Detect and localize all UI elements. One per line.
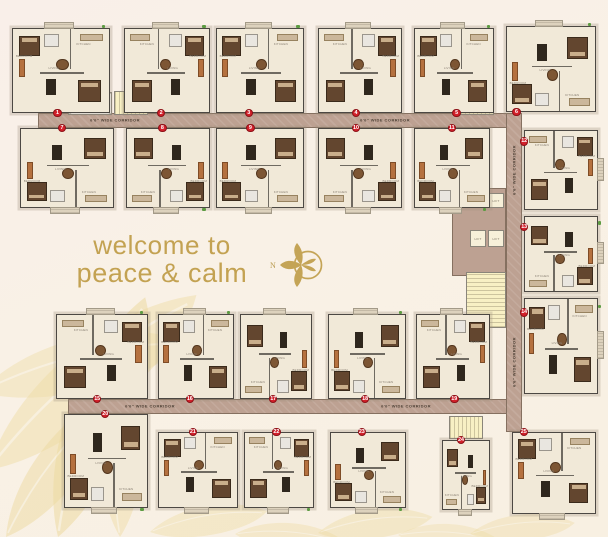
room-label: KITCHEN bbox=[535, 275, 549, 278]
unit-interior: BEDROOMLIVINGKITCHEN bbox=[525, 217, 597, 291]
balcony bbox=[597, 242, 604, 264]
bed-icon bbox=[186, 36, 204, 56]
room-label: BEDROOM bbox=[417, 55, 434, 58]
unit-number-badge: 16 bbox=[186, 395, 194, 403]
room-label: LIVING bbox=[552, 342, 563, 345]
interior-wall-icon bbox=[532, 66, 572, 68]
bed-icon bbox=[186, 182, 204, 201]
room-label: LIVING bbox=[49, 67, 60, 70]
room-label: LIVING bbox=[452, 353, 463, 356]
kitchen-counter-icon bbox=[62, 320, 84, 327]
bathroom-icon bbox=[362, 34, 375, 47]
tv-unit-icon bbox=[457, 365, 465, 382]
apartment-unit: BEDROOMLIVINGKITCHEN19 bbox=[416, 314, 490, 399]
bed-icon bbox=[531, 226, 548, 245]
apartment-unit: BEDROOMLIVINGKITCHEN7 bbox=[20, 128, 114, 208]
plant-icon bbox=[598, 305, 601, 308]
bed-icon bbox=[574, 357, 591, 381]
kitchen-counter-icon bbox=[529, 136, 546, 143]
balcony bbox=[345, 207, 371, 214]
room-label: LIVING bbox=[442, 168, 453, 171]
corridor-width-label: 6'6" WIDE CORRIDOR bbox=[512, 145, 517, 195]
wardrobe-icon bbox=[529, 333, 534, 354]
unit-interior: BEDROOMLIVINGKITCHEN bbox=[65, 415, 147, 507]
bathroom-icon bbox=[355, 491, 367, 503]
north-compass-icon: N bbox=[268, 240, 332, 292]
wardrobe-icon bbox=[512, 62, 518, 80]
kitchen-counter-icon bbox=[130, 34, 150, 41]
interior-wall-icon bbox=[205, 433, 206, 469]
bathroom-icon bbox=[183, 320, 195, 333]
room-label: BEDROOM bbox=[24, 180, 41, 183]
plant-icon bbox=[140, 311, 143, 314]
bed-icon bbox=[70, 478, 88, 500]
apartment-unit: BEDROOMLIVINGKITCHEN21 bbox=[158, 432, 238, 508]
wardrobe-icon bbox=[588, 159, 593, 176]
apartment-unit: BEDROOMLIVINGKITCHEN10 bbox=[318, 128, 402, 208]
kitchen-counter-icon bbox=[421, 320, 438, 327]
balcony bbox=[183, 308, 207, 315]
unit-number-badge: 5 bbox=[452, 109, 460, 117]
balcony bbox=[91, 507, 117, 514]
bed-icon bbox=[335, 483, 351, 501]
wardrobe-icon bbox=[19, 59, 26, 77]
room-label: LIVING bbox=[358, 470, 369, 473]
bed-icon bbox=[577, 267, 593, 285]
unit-interior: BEDROOMLIVINGKITCHEN bbox=[443, 441, 489, 509]
bathroom-icon bbox=[362, 190, 375, 202]
interior-wall-icon bbox=[113, 463, 114, 507]
balcony bbox=[152, 22, 179, 29]
unit-interior: BEDROOMLIVINGKITCHEN bbox=[415, 129, 489, 207]
interior-wall-icon bbox=[350, 353, 385, 354]
kitchen-counter-icon bbox=[382, 386, 400, 393]
balcony bbox=[355, 507, 379, 514]
kitchen-counter-icon bbox=[324, 34, 344, 41]
balcony bbox=[263, 308, 285, 315]
interior-wall-icon bbox=[559, 71, 560, 111]
interior-wall-icon bbox=[545, 348, 578, 350]
plant-icon bbox=[588, 23, 591, 26]
lift: LIFT bbox=[470, 230, 486, 247]
tagline-line1: welcome to bbox=[56, 232, 268, 259]
bathroom-icon bbox=[169, 34, 182, 47]
unit-interior: BEDROOMLIVINGKITCHEN bbox=[417, 315, 489, 398]
kitchen-counter-icon bbox=[277, 195, 298, 202]
room-label: KITCHEN bbox=[379, 381, 393, 384]
room-label: KITCHEN bbox=[535, 144, 549, 147]
bed-icon bbox=[378, 182, 396, 201]
bathroom-icon bbox=[535, 93, 549, 106]
bathroom-icon bbox=[454, 320, 466, 333]
plant-icon bbox=[399, 311, 402, 314]
interior-wall-icon bbox=[567, 299, 568, 344]
unit-interior: BEDROOMLIVINGKITCHEN bbox=[525, 131, 597, 209]
wardrobe-icon bbox=[483, 470, 486, 485]
room-label: KITCHEN bbox=[210, 446, 224, 449]
kitchen-counter-icon bbox=[570, 438, 590, 445]
unit-number-badge: 1 bbox=[53, 109, 61, 117]
room-label: BEDROOM bbox=[161, 456, 178, 459]
wardrobe-icon bbox=[304, 460, 309, 476]
interior-wall-icon bbox=[92, 315, 93, 355]
bed-icon bbox=[291, 371, 306, 391]
room-label: KITCHEN bbox=[466, 43, 480, 46]
bathroom-icon bbox=[245, 190, 259, 202]
interior-wall-icon bbox=[88, 458, 126, 460]
interior-wall-icon bbox=[536, 475, 574, 476]
room-label: LIVING bbox=[277, 467, 288, 470]
tv-unit-icon bbox=[184, 365, 192, 382]
room-label: LIVING bbox=[95, 462, 106, 465]
apartment-unit: BEDROOMLIVINGKITCHEN3 bbox=[216, 28, 304, 113]
tv-unit-icon bbox=[280, 332, 288, 349]
unit-interior: BEDROOMLIVINGKITCHEN bbox=[329, 315, 405, 398]
balcony bbox=[539, 513, 565, 520]
unit-interior: BEDROOMLIVINGKITCHEN bbox=[217, 29, 303, 112]
bed-icon bbox=[209, 366, 227, 388]
bathroom-icon bbox=[50, 190, 65, 202]
unit-number-badge: 22 bbox=[272, 428, 280, 436]
interior-wall-icon bbox=[241, 72, 281, 73]
interior-wall-icon bbox=[553, 131, 554, 168]
interior-wall-icon bbox=[445, 315, 446, 355]
plant-icon bbox=[598, 221, 601, 224]
bed-icon bbox=[121, 426, 141, 450]
room-label: KITCHEN bbox=[274, 191, 288, 194]
apartment-unit: BEDROOMLIVINGKITCHEN5 bbox=[414, 28, 494, 113]
interior-wall-icon bbox=[375, 471, 376, 507]
wardrobe-icon bbox=[302, 350, 307, 368]
bed-icon bbox=[529, 307, 545, 330]
balcony bbox=[439, 207, 463, 214]
plant-icon bbox=[140, 508, 143, 511]
room-label: LIVING bbox=[560, 167, 571, 170]
tv-unit-icon bbox=[364, 79, 373, 96]
corridor-width-label: 6'6" WIDE CORRIDOR bbox=[90, 118, 140, 123]
plant-icon bbox=[399, 508, 402, 511]
kitchen-counter-icon bbox=[277, 34, 298, 41]
plant-icon bbox=[483, 208, 486, 211]
room-label: LIVING bbox=[540, 69, 551, 72]
bathroom-icon bbox=[439, 190, 451, 202]
room-label: LIVING bbox=[357, 357, 368, 360]
corridor-width-label: 6'6" WIDE CORRIDOR bbox=[360, 118, 410, 123]
room-label: LIVING bbox=[103, 353, 114, 356]
apartment-unit: BEDROOMLIVINGKITCHEN4 bbox=[318, 28, 402, 113]
interior-wall-icon bbox=[340, 72, 378, 73]
room-label: LIVING bbox=[543, 470, 554, 473]
balcony bbox=[50, 207, 79, 214]
bed-icon bbox=[275, 80, 296, 102]
balcony bbox=[345, 22, 371, 29]
interior-wall-icon bbox=[437, 72, 473, 73]
interior-wall-icon bbox=[374, 358, 375, 398]
tv-unit-icon bbox=[440, 145, 448, 161]
kitchen-counter-icon bbox=[569, 98, 590, 106]
tv-unit-icon bbox=[52, 145, 62, 161]
room-label: LIVING bbox=[461, 475, 472, 478]
bed-icon bbox=[469, 322, 485, 342]
unit-interior: BEDROOMLIVINGKITCHEN bbox=[217, 129, 303, 207]
room-label: KITCHEN bbox=[567, 447, 581, 450]
unit-number-badge: 3 bbox=[245, 109, 253, 117]
room-label: BEDROOM bbox=[382, 180, 399, 183]
bathroom-icon bbox=[277, 380, 288, 393]
interior-wall-icon bbox=[561, 433, 562, 471]
unit-number-badge: 6 bbox=[512, 108, 520, 116]
balcony bbox=[245, 22, 273, 29]
apartment-unit: BEDROOMLIVINGKITCHEN22 bbox=[244, 432, 314, 508]
apartment-unit: BEDROOMLIVINGKITCHEN15 bbox=[56, 314, 148, 399]
bed-icon bbox=[447, 449, 458, 467]
tv-unit-icon bbox=[549, 355, 557, 374]
apartment-unit: BEDROOMLIVINGKITCHEN2 bbox=[124, 28, 210, 113]
bed-icon bbox=[132, 80, 152, 102]
bed-icon bbox=[222, 182, 241, 201]
room-label: LIVING bbox=[55, 168, 66, 171]
room-label: BEDROOM bbox=[510, 82, 527, 85]
bed-icon bbox=[122, 322, 142, 342]
room-label: BEDROOM bbox=[294, 456, 311, 459]
interior-wall-icon bbox=[159, 170, 160, 207]
apartment-unit: BEDROOMLIVINGKITCHEN24 bbox=[442, 440, 490, 510]
bed-icon bbox=[381, 325, 399, 347]
bathroom-icon bbox=[562, 136, 574, 148]
tv-unit-icon bbox=[282, 477, 289, 492]
bed-icon bbox=[247, 325, 264, 347]
unit-number-badge: 19 bbox=[450, 395, 458, 403]
tv-unit-icon bbox=[246, 145, 255, 161]
interior-wall-icon bbox=[544, 172, 577, 173]
apartment-unit: BEDROOMLIVINGKITCHEN25 bbox=[512, 432, 596, 514]
bed-icon bbox=[275, 138, 296, 158]
balcony bbox=[153, 207, 179, 214]
bed-icon bbox=[326, 80, 346, 102]
interior-wall-icon bbox=[351, 170, 352, 207]
room-label: KITCHEN bbox=[274, 43, 288, 46]
kitchen-counter-icon bbox=[249, 437, 265, 444]
interior-wall-icon bbox=[147, 72, 186, 73]
unit-interior: BEDROOMLIVINGKITCHEN bbox=[125, 29, 209, 112]
unit-interior: BEDROOMLIVINGKITCHEN bbox=[245, 433, 313, 507]
bed-icon bbox=[212, 479, 231, 498]
unit-interior: BEDROOMLIVINGKITCHEN bbox=[319, 129, 401, 207]
plant-icon bbox=[202, 25, 205, 28]
bed-icon bbox=[531, 179, 548, 199]
tv-unit-icon bbox=[172, 145, 181, 161]
room-label: BEDROOM bbox=[515, 458, 532, 461]
room-label: BEDROOM bbox=[333, 481, 350, 484]
interior-wall-icon bbox=[268, 29, 269, 69]
interior-wall-icon bbox=[436, 358, 469, 359]
balcony bbox=[353, 308, 377, 315]
apartment-unit: BEDROOMLIVINGKITCHEN9 bbox=[216, 128, 304, 208]
kitchen-counter-icon bbox=[132, 195, 152, 202]
corridor-width-label: 6'6" WIDE CORRIDOR bbox=[381, 404, 431, 409]
room-label: BEDROOM bbox=[128, 341, 145, 344]
bathroom-icon bbox=[184, 437, 196, 449]
bed-icon bbox=[567, 37, 588, 59]
room-label: BEDROOM bbox=[220, 180, 237, 183]
room-label: LIVING bbox=[167, 67, 178, 70]
unit-number-badge: 12 bbox=[520, 137, 528, 145]
tv-unit-icon bbox=[565, 232, 573, 247]
room-label: LIVING bbox=[186, 353, 197, 356]
bed-icon bbox=[250, 479, 266, 498]
kitchen-counter-icon bbox=[383, 496, 401, 503]
lift: LIFT bbox=[488, 193, 504, 208]
room-label: LIVING bbox=[249, 168, 260, 171]
kitchen-counter-icon bbox=[575, 305, 592, 313]
interior-wall-icon bbox=[263, 471, 294, 472]
interior-wall-icon bbox=[47, 165, 89, 166]
kitchen-counter-icon bbox=[245, 386, 262, 393]
unit-interior: BEDROOMLIVINGKITCHEN bbox=[127, 129, 209, 207]
interior-wall-icon bbox=[70, 29, 72, 69]
room-label: BEDROOM bbox=[527, 328, 544, 331]
wardrobe-icon bbox=[390, 59, 396, 77]
bed-icon bbox=[569, 483, 589, 504]
room-label: KITCHEN bbox=[141, 191, 155, 194]
interior-wall-icon bbox=[259, 353, 291, 354]
balcony bbox=[458, 509, 473, 516]
interior-wall-icon bbox=[180, 358, 214, 359]
room-label: LIVING bbox=[168, 168, 179, 171]
tagline: welcome to peace & calm bbox=[56, 232, 268, 287]
bed-icon bbox=[423, 366, 440, 388]
unit-interior: BEDROOMLIVINGKITCHEN bbox=[319, 29, 401, 112]
kitchen-counter-icon bbox=[529, 280, 546, 287]
interior-wall-icon bbox=[203, 315, 204, 355]
wardrobe-icon bbox=[163, 345, 168, 363]
room-label: LIVING bbox=[360, 168, 371, 171]
interior-wall-icon bbox=[40, 72, 84, 73]
tv-unit-icon bbox=[541, 481, 550, 497]
unit-interior: BEDROOMLIVINGKITCHEN bbox=[513, 433, 595, 513]
room-label: BEDROOM bbox=[382, 55, 399, 58]
unit-interior: BEDROOMLIVINGKITCHEN bbox=[331, 433, 405, 507]
unit-interior: BEDROOMLIVINGKITCHEN bbox=[159, 433, 237, 507]
bed-icon bbox=[577, 137, 593, 156]
corridor-width-label: 6'6" WIDE CORRIDOR bbox=[125, 404, 175, 409]
bed-icon bbox=[465, 138, 483, 158]
tv-unit-icon bbox=[355, 332, 363, 349]
interior-wall-icon bbox=[553, 255, 554, 291]
plant-icon bbox=[296, 25, 299, 28]
room-label: BEDROOM bbox=[16, 55, 33, 58]
apartment-unit: BEDROOMLIVINGKITCHEN16 bbox=[158, 314, 234, 399]
room-label: BEDROOM bbox=[470, 341, 487, 344]
kitchen-counter-icon bbox=[470, 34, 489, 41]
bathroom-icon bbox=[104, 320, 118, 333]
bed-icon bbox=[78, 80, 101, 102]
bed-icon bbox=[378, 36, 396, 56]
interior-wall-icon bbox=[148, 165, 186, 166]
apartment-unit: BEDROOMLIVINGKITCHEN12 bbox=[524, 130, 598, 210]
bathroom-icon bbox=[539, 438, 552, 451]
room-label: BEDROOM bbox=[292, 369, 309, 372]
tv-unit-icon bbox=[107, 365, 117, 382]
room-label: KITCHEN bbox=[427, 329, 441, 332]
wardrobe-icon bbox=[164, 460, 169, 476]
wardrobe-icon bbox=[222, 59, 228, 77]
bathroom-icon bbox=[91, 487, 104, 502]
plant-icon bbox=[102, 25, 105, 28]
balcony bbox=[245, 207, 273, 214]
north-label: N bbox=[270, 261, 276, 270]
wardrobe-icon bbox=[419, 162, 424, 179]
staircase bbox=[449, 416, 483, 439]
apartment-unit: BEDROOMLIVINGKITCHEN23 bbox=[330, 432, 406, 508]
kitchen-counter-icon bbox=[80, 34, 103, 41]
unit-number-badge: 8 bbox=[158, 124, 166, 132]
unit-interior: BEDROOMLIVINGKITCHEN bbox=[507, 27, 595, 111]
room-label: KITCHEN bbox=[139, 43, 153, 46]
bathroom-icon bbox=[353, 380, 365, 393]
balcony bbox=[535, 20, 563, 27]
wardrobe-icon bbox=[420, 59, 425, 77]
unit-interior: BEDROOMLIVINGKITCHEN bbox=[525, 299, 597, 393]
room-label: BEDROOM bbox=[190, 180, 207, 183]
interior-wall-icon bbox=[461, 476, 462, 509]
bed-icon bbox=[164, 439, 181, 457]
apartment-unit: BEDROOMLIVINGKITCHEN18 bbox=[328, 314, 406, 399]
kitchen-counter-icon bbox=[467, 195, 485, 202]
bathroom-icon bbox=[44, 34, 59, 47]
bed-icon bbox=[381, 442, 399, 461]
bed-icon bbox=[222, 36, 241, 56]
balcony bbox=[597, 158, 604, 181]
bed-icon bbox=[468, 80, 487, 102]
bed-icon bbox=[334, 371, 351, 391]
unit-interior: BEDROOMLIVINGKITCHEN bbox=[57, 315, 147, 398]
apartment-unit: BEDROOMLIVINGKITCHEN14 bbox=[524, 298, 598, 394]
wardrobe-icon bbox=[135, 345, 141, 363]
room-label: KITCHEN bbox=[208, 329, 222, 332]
interior-wall-icon bbox=[241, 165, 281, 166]
plant-icon bbox=[202, 208, 205, 211]
bed-icon bbox=[419, 182, 435, 201]
tv-unit-icon bbox=[46, 79, 57, 96]
unit-interior: BEDROOMLIVINGKITCHEN bbox=[415, 29, 493, 112]
interior-wall-icon bbox=[181, 471, 217, 472]
bathroom-icon bbox=[440, 34, 452, 47]
apartment-unit: BEDROOMLIVINGKITCHEN17 bbox=[240, 314, 312, 399]
bed-icon bbox=[19, 36, 40, 56]
room-label: BEDROOM bbox=[161, 341, 178, 344]
interior-wall-icon bbox=[80, 358, 121, 359]
apartment-unit: BEDROOMLIVINGKITCHEN6 bbox=[506, 26, 596, 112]
room-label: KITCHEN bbox=[333, 43, 347, 46]
interior-wall-icon bbox=[340, 165, 378, 166]
room-label: KITCHEN bbox=[82, 191, 96, 194]
tv-unit-icon bbox=[364, 145, 373, 161]
balcony bbox=[440, 308, 463, 315]
wardrobe-icon bbox=[198, 162, 204, 179]
room-label: KITCHEN bbox=[76, 43, 90, 46]
room-label: BEDROOM bbox=[331, 369, 348, 372]
bathroom-icon bbox=[562, 275, 574, 287]
apartment-unit: BEDROOMLIVINGKITCHEN8 bbox=[126, 128, 210, 208]
room-label: BEDROOM bbox=[220, 55, 237, 58]
plant-icon bbox=[307, 508, 310, 511]
room-label: LIVING bbox=[444, 67, 455, 70]
kitchen-counter-icon bbox=[324, 195, 344, 202]
unit-interior: BEDROOMLIVINGKITCHEN bbox=[241, 315, 311, 398]
bed-icon bbox=[134, 138, 154, 158]
room-label: KITCHEN bbox=[119, 488, 133, 491]
